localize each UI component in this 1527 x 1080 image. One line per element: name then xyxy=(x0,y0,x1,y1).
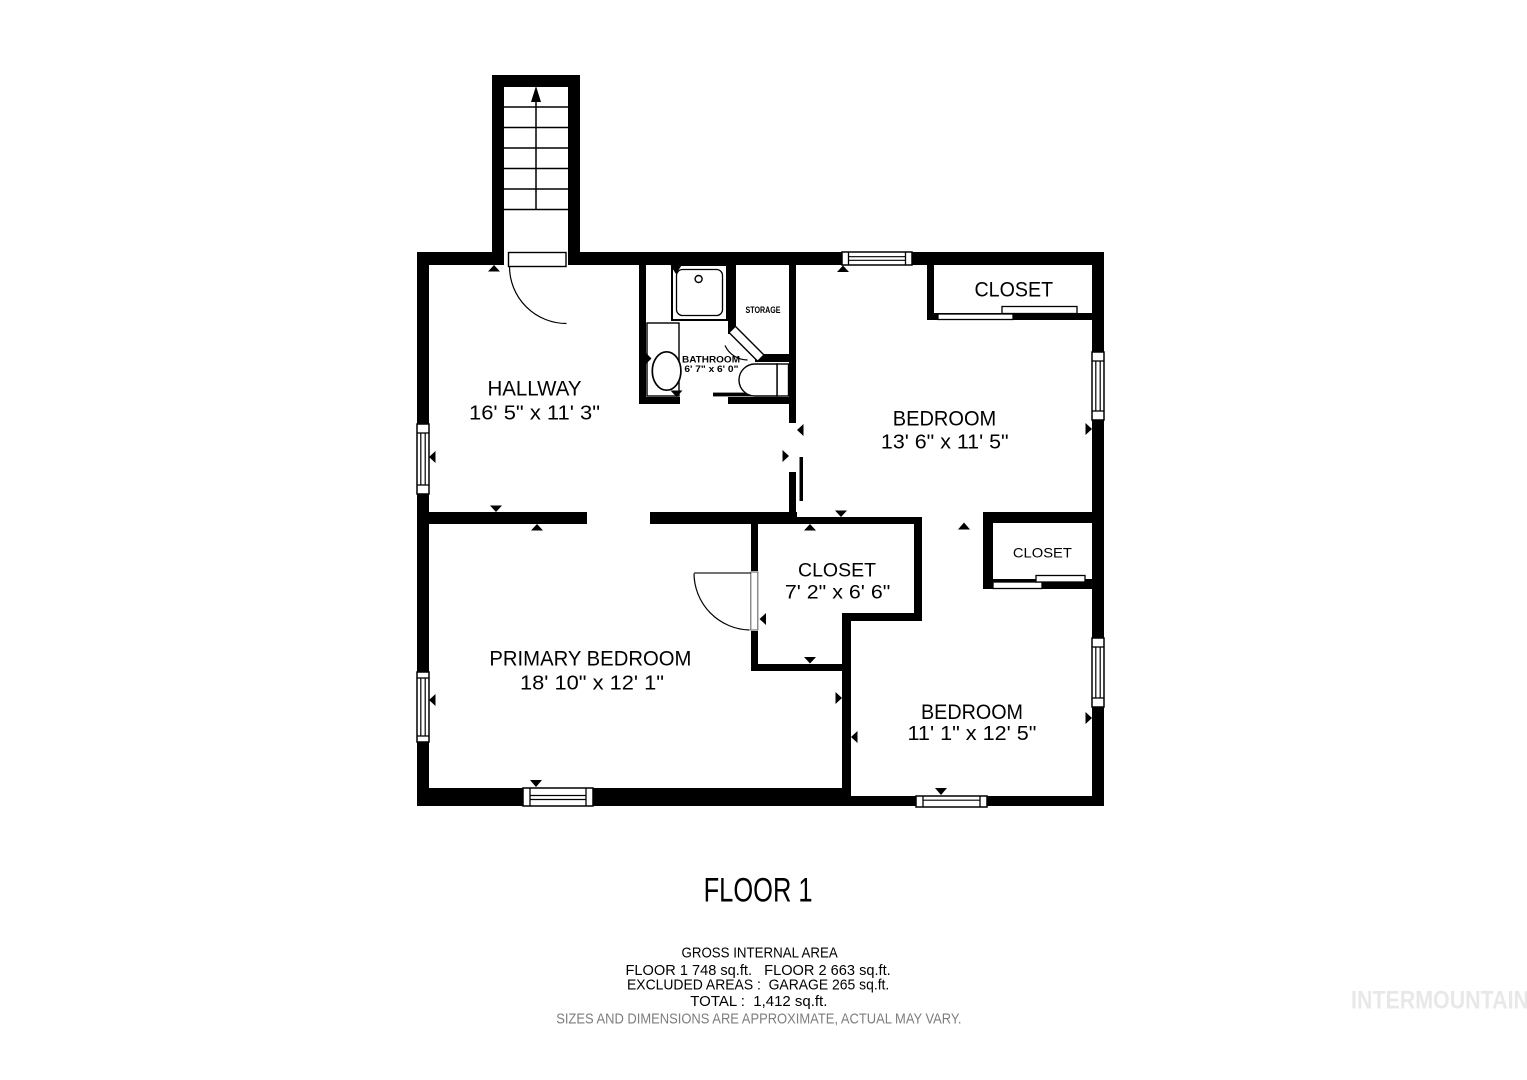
svg-text:18' 10" x 12' 1": 18' 10" x 12' 1" xyxy=(520,673,664,695)
svg-text:HALLWAY: HALLWAY xyxy=(488,378,582,401)
svg-text:16' 5" x 11' 3": 16' 5" x 11' 3" xyxy=(469,403,600,425)
svg-text:BEDROOM: BEDROOM xyxy=(921,701,1023,724)
svg-text:CLOSET: CLOSET xyxy=(1013,544,1072,560)
svg-text:7' 2" x 6' 6": 7' 2" x 6' 6" xyxy=(785,583,891,604)
svg-text:STORAGE: STORAGE xyxy=(746,305,781,315)
svg-text:CLOSET: CLOSET xyxy=(798,561,876,582)
svg-text:CLOSET: CLOSET xyxy=(975,279,1054,302)
svg-text:13' 6" x 11' 5": 13' 6" x 11' 5" xyxy=(881,432,1009,454)
svg-text:EXCLUDED AREAS : GARAGE 265 s: EXCLUDED AREAS : GARAGE 265 sq.ft. xyxy=(627,977,889,994)
svg-text:BEDROOM: BEDROOM xyxy=(893,408,997,431)
svg-text:PRIMARY BEDROOM: PRIMARY BEDROOM xyxy=(489,648,691,671)
svg-text:INTERMOUNTAIN: INTERMOUNTAIN xyxy=(1351,987,1527,1015)
svg-text:FLOOR 1: FLOOR 1 xyxy=(704,871,813,909)
svg-text:6' 7" x 6' 0": 6' 7" x 6' 0" xyxy=(684,364,738,374)
svg-text:SIZES AND DIMENSIONS ARE APPRO: SIZES AND DIMENSIONS ARE APPROXIMATE, AC… xyxy=(556,1011,961,1028)
svg-text:GROSS INTERNAL AREA: GROSS INTERNAL AREA xyxy=(682,944,838,961)
svg-text:TOTAL : 1,412 sq.ft.: TOTAL : 1,412 sq.ft. xyxy=(690,993,827,1010)
svg-text:11' 1" x 12' 5": 11' 1" x 12' 5" xyxy=(908,723,1037,745)
